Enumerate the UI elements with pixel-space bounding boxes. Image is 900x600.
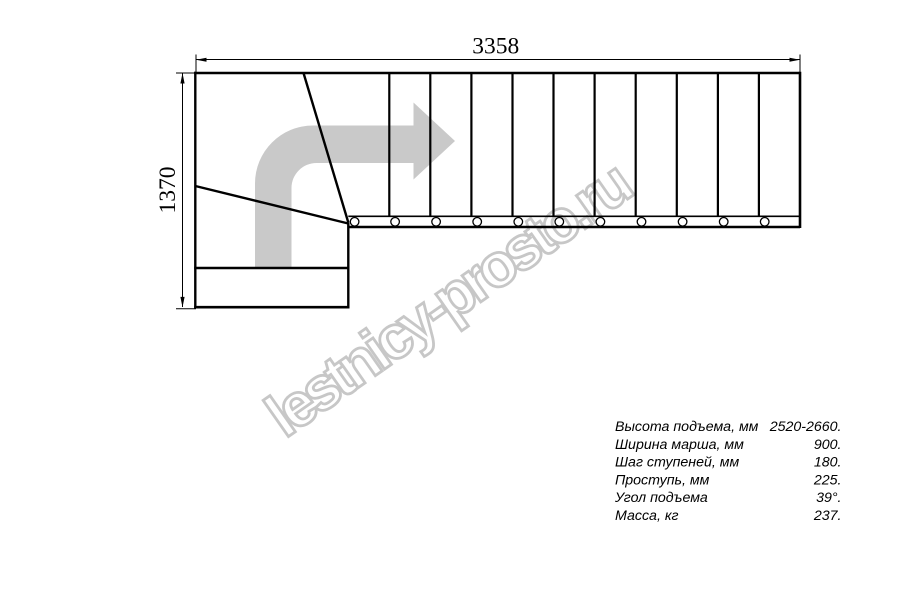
svg-text:Высота подъема, мм: Высота подъема, мм <box>615 419 759 435</box>
svg-text:225.: 225. <box>813 472 842 488</box>
svg-text:180.: 180. <box>814 455 842 471</box>
svg-text:39°.: 39°. <box>816 490 841 506</box>
svg-text:2520-2660.: 2520-2660. <box>769 419 842 435</box>
svg-text:Угол подъема: Угол подъема <box>614 490 708 506</box>
svg-text:1370: 1370 <box>155 167 181 214</box>
svg-text:lestnicy-prosto.ru: lestnicy-prosto.ru <box>253 149 642 450</box>
svg-text:Масса, кг: Масса, кг <box>615 508 679 524</box>
svg-text:900.: 900. <box>814 437 842 453</box>
svg-text:Проступь, мм: Проступь, мм <box>615 472 710 488</box>
svg-text:Ширина марша, мм: Ширина марша, мм <box>615 437 744 453</box>
svg-text:Шаг ступеней, мм: Шаг ступеней, мм <box>615 455 739 471</box>
svg-text:3358: 3358 <box>472 34 519 60</box>
svg-text:237.: 237. <box>813 508 842 524</box>
